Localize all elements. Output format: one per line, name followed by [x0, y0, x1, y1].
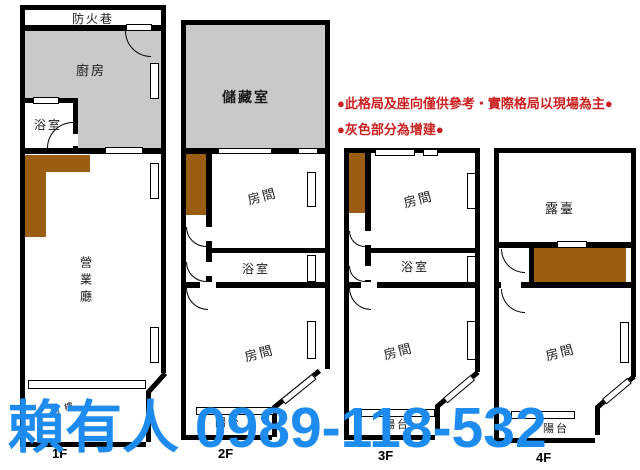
door-swing [186, 288, 208, 310]
window-marker [307, 321, 316, 359]
window-marker [307, 172, 316, 207]
wall-segment [595, 406, 600, 435]
wall-segment [365, 248, 475, 253]
door-swing [349, 231, 365, 247]
window-marker [423, 149, 438, 156]
door-opening [365, 266, 371, 280]
room-label-fire-lane: 防火巷 [25, 11, 161, 25]
room-label-room: 房間 [523, 330, 597, 371]
door-swing [186, 227, 206, 247]
door-opening [73, 134, 78, 146]
room-label-terrace: 露臺 [525, 197, 595, 217]
room-label-bathroom: 浴室 [380, 257, 450, 275]
floorplan-1f: 防火巷 浴室 廚房 營業廳 騎樓 [20, 5, 166, 447]
window-marker [557, 241, 587, 248]
window-marker [467, 321, 476, 360]
window-marker [375, 149, 415, 156]
addition-brown-area [534, 248, 626, 282]
floorplan-2f: 儲藏室 房間 浴室 房間 陽台 [181, 20, 330, 440]
room-label-bathroom: 浴室 [221, 259, 291, 277]
window-marker [150, 63, 159, 99]
room-label-business-hall: 營業廳 [75, 248, 97, 314]
door-swing [186, 262, 206, 282]
room-label-room-lower: 房間 [366, 331, 430, 370]
agent-watermark: 賴有人 0989-118-532 [8, 382, 547, 464]
door-opening [206, 262, 212, 276]
disclaimer-note-line1: ●此格局及座向僅供參考‧實際格局以現場為主● [337, 93, 613, 112]
door-opening [365, 231, 371, 245]
room-label-room-upper: 房間 [381, 177, 455, 218]
addition-brown-area [349, 153, 365, 213]
window-marker [298, 148, 318, 154]
door-leaf [126, 24, 152, 31]
window-marker [150, 327, 159, 363]
door-swing [501, 289, 525, 313]
room-label-kitchen: 廚房 [53, 60, 129, 78]
door-swing [349, 288, 371, 310]
addition-brown-area [186, 154, 206, 215]
door-opening [206, 227, 212, 241]
wall-segment [365, 153, 371, 283]
disclaimer-note-line2: ●灰色部分為增建● [337, 119, 444, 138]
window-marker [307, 255, 316, 282]
wall-segment [206, 248, 325, 253]
floorplan-canvas: 防火巷 浴室 廚房 營業廳 騎樓 儲藏室 [0, 0, 640, 470]
door-swing [349, 266, 365, 282]
door-opening [501, 282, 521, 288]
window-marker [620, 322, 629, 363]
window-marker [218, 148, 272, 154]
window-marker [467, 173, 476, 209]
window-marker [467, 256, 476, 283]
window-marker [33, 97, 59, 104]
room-label-bathroom: 浴室 [25, 115, 71, 133]
window-marker [105, 147, 143, 154]
room-label-storage: 儲藏室 [196, 88, 296, 106]
addition-brown-area [25, 155, 46, 237]
window-marker [150, 163, 159, 199]
room-label-room-upper: 房間 [225, 174, 299, 215]
door-swing [501, 249, 525, 273]
room-label-room-lower: 房間 [222, 331, 296, 372]
